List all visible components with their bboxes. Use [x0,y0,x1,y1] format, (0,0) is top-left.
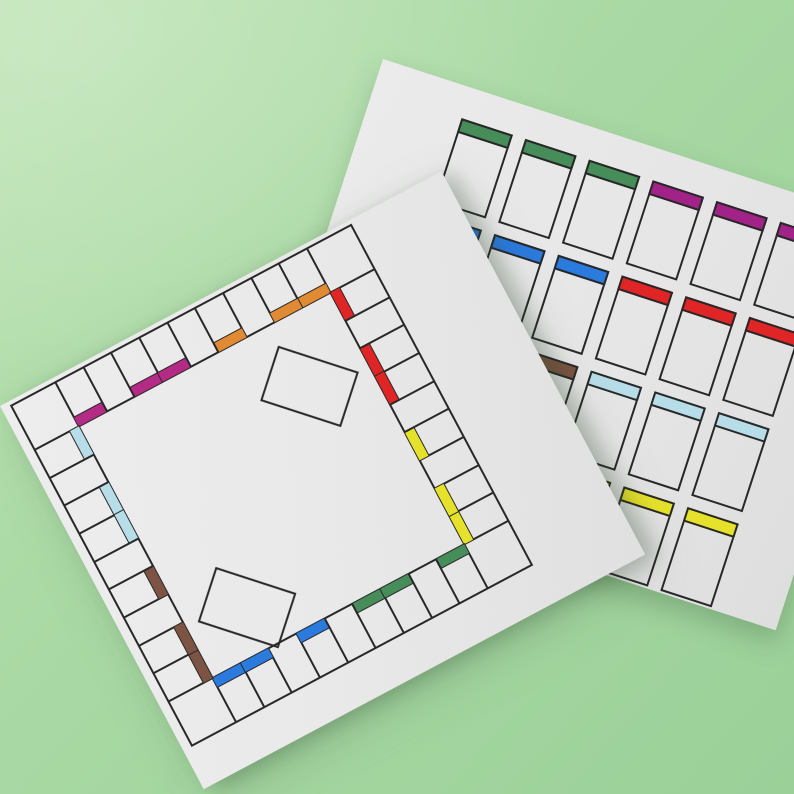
property-card-r1-c3 [562,160,641,260]
card-color-bar-light_blue [714,412,770,443]
card-color-bar-red [745,317,794,348]
card-zone-1 [260,346,359,427]
card-color-bar-red [681,296,737,327]
card-zone-2 [198,567,297,648]
card-color-bar-magenta [648,180,704,211]
card-color-bar-yellow [619,486,675,517]
card-color-bar-blue [553,255,609,286]
space-color-bar-brown [187,649,213,684]
property-card-r1-c4 [626,180,705,280]
property-card-r3-c5 [627,391,706,491]
property-card-r4-c6 [660,507,739,607]
game-board [11,225,532,746]
card-color-bar-blue [490,234,546,265]
space-color-bar-yellow [449,510,475,545]
space-color-bar-green [435,543,470,569]
property-card-r1-c2 [498,139,577,239]
card-color-bar-magenta [712,201,768,232]
card-color-bar-red [617,275,673,306]
card-color-bar-green [521,139,577,170]
property-card-r2-c5 [658,296,737,396]
card-color-bar-light_blue [650,391,706,422]
property-card-r3-c6 [691,412,770,512]
property-card-r1-c5 [689,201,768,301]
scene-background [0,0,794,794]
card-color-bar-green [584,160,640,191]
property-card-r2-c3 [531,255,610,355]
card-color-bar-yellow [683,507,739,538]
space-color-bar-orange [297,282,332,308]
card-color-bar-magenta [776,222,794,253]
card-color-bar-green [457,118,513,149]
property-card-r2-c4 [595,275,674,375]
property-card-r2-c6 [722,317,794,417]
card-color-bar-light_blue [586,370,642,401]
